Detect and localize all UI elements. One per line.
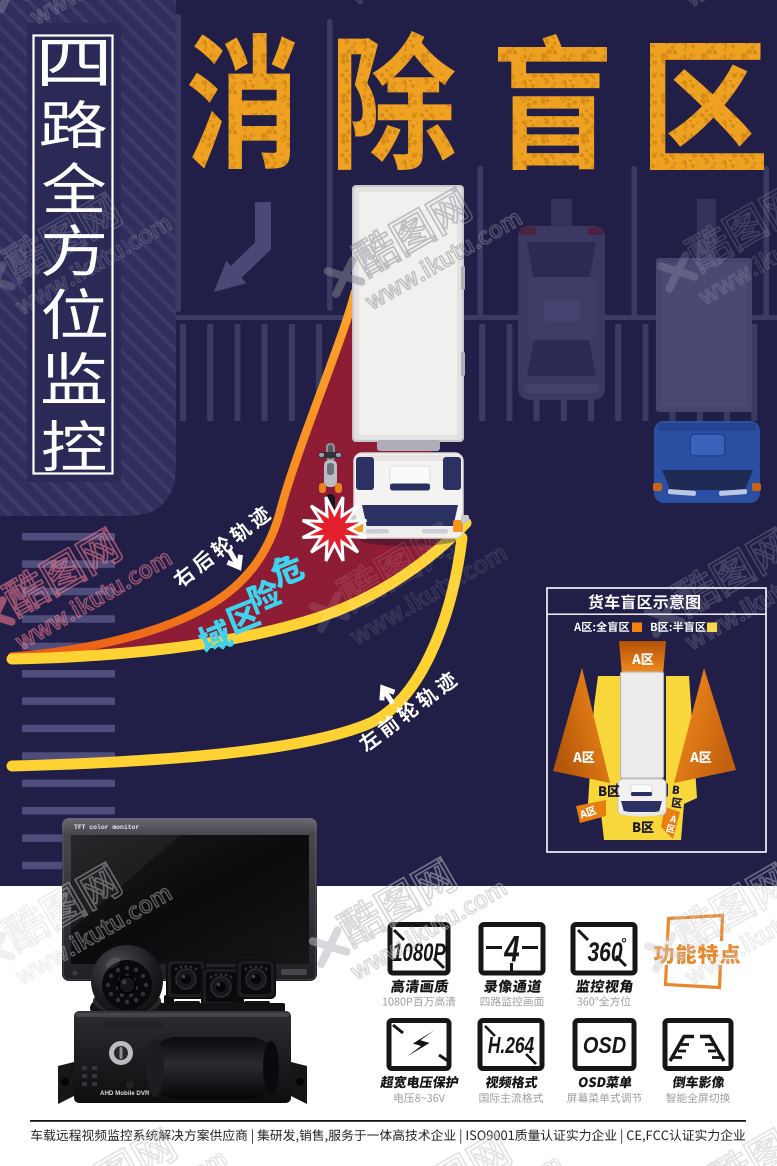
- svg-text:TFT color monitor: TFT color monitor: [74, 824, 139, 831]
- svg-text:OSD: OSD: [583, 1031, 626, 1058]
- svg-text:360: 360: [587, 938, 623, 968]
- svg-text:4: 4: [503, 927, 519, 969]
- svg-text:AHD Mobile DVR: AHD Mobile DVR: [100, 1090, 150, 1097]
- svg-text:H.264: H.264: [488, 1033, 535, 1059]
- svg-text:°: °: [621, 935, 627, 951]
